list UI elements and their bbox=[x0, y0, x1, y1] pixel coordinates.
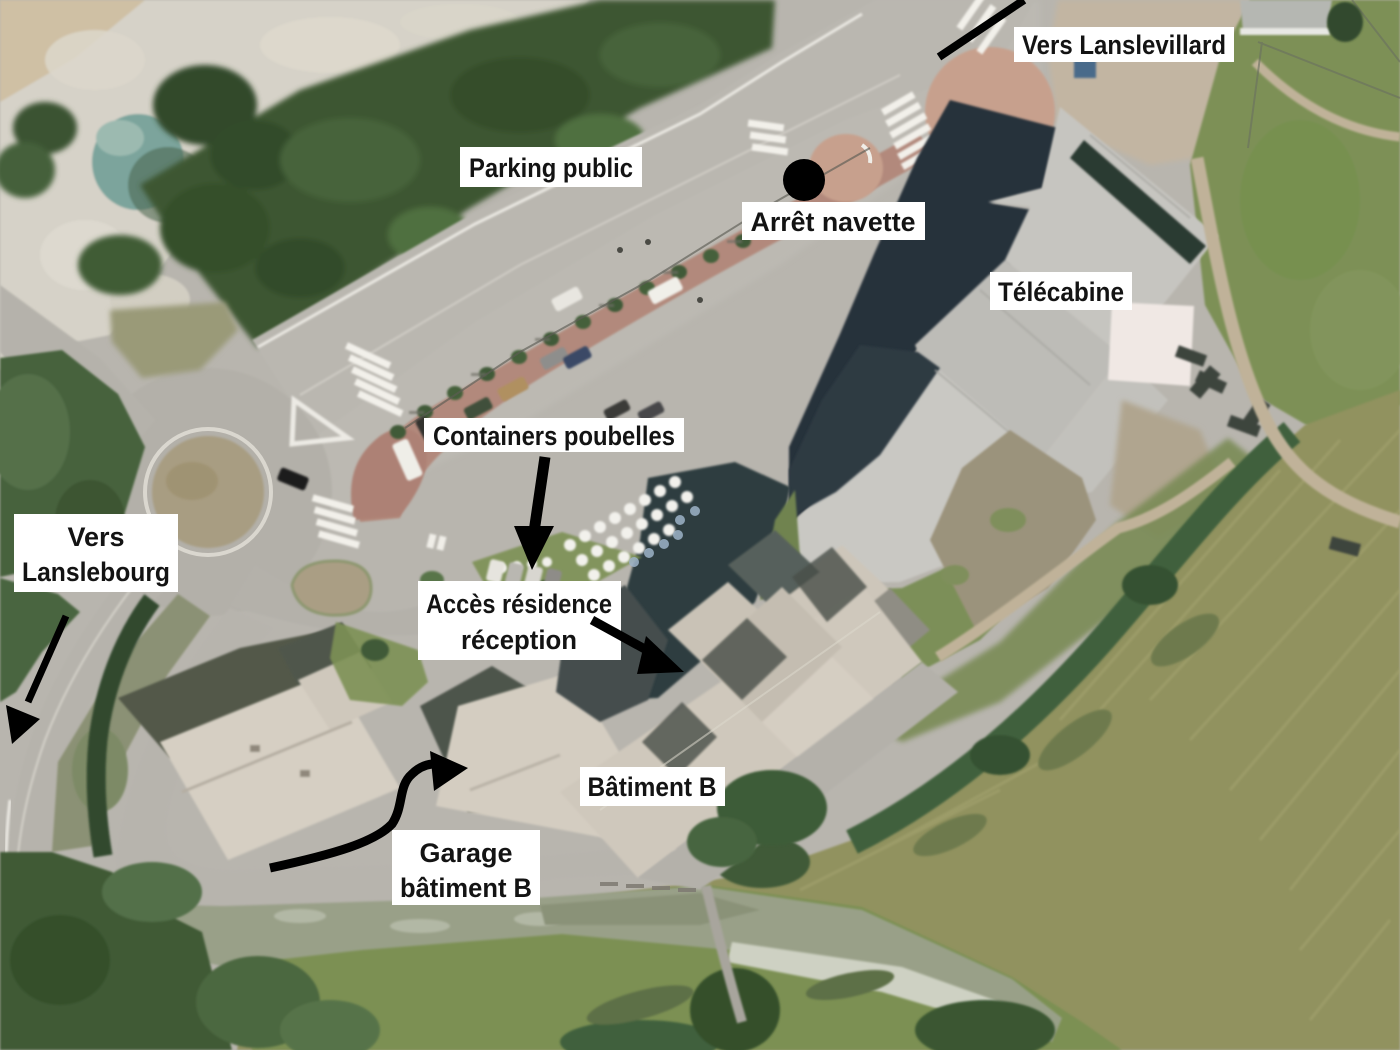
svg-text:Containers poubelles: Containers poubelles bbox=[433, 421, 675, 451]
svg-text:Lanslebourg: Lanslebourg bbox=[22, 557, 170, 587]
svg-text:Parking public: Parking public bbox=[469, 153, 633, 183]
svg-text:Accès résidence: Accès résidence bbox=[426, 589, 612, 619]
svg-text:Télécabine: Télécabine bbox=[998, 277, 1124, 307]
svg-text:Arrêt navette: Arrêt navette bbox=[751, 207, 916, 237]
svg-text:Vers Lanslevillard: Vers Lanslevillard bbox=[1022, 30, 1226, 60]
svg-text:Bâtiment B: Bâtiment B bbox=[588, 772, 717, 802]
svg-text:Garage: Garage bbox=[419, 838, 512, 868]
svg-text:bâtiment B: bâtiment B bbox=[400, 873, 532, 903]
svg-text:Vers: Vers bbox=[67, 522, 124, 552]
svg-text:réception: réception bbox=[461, 625, 577, 655]
